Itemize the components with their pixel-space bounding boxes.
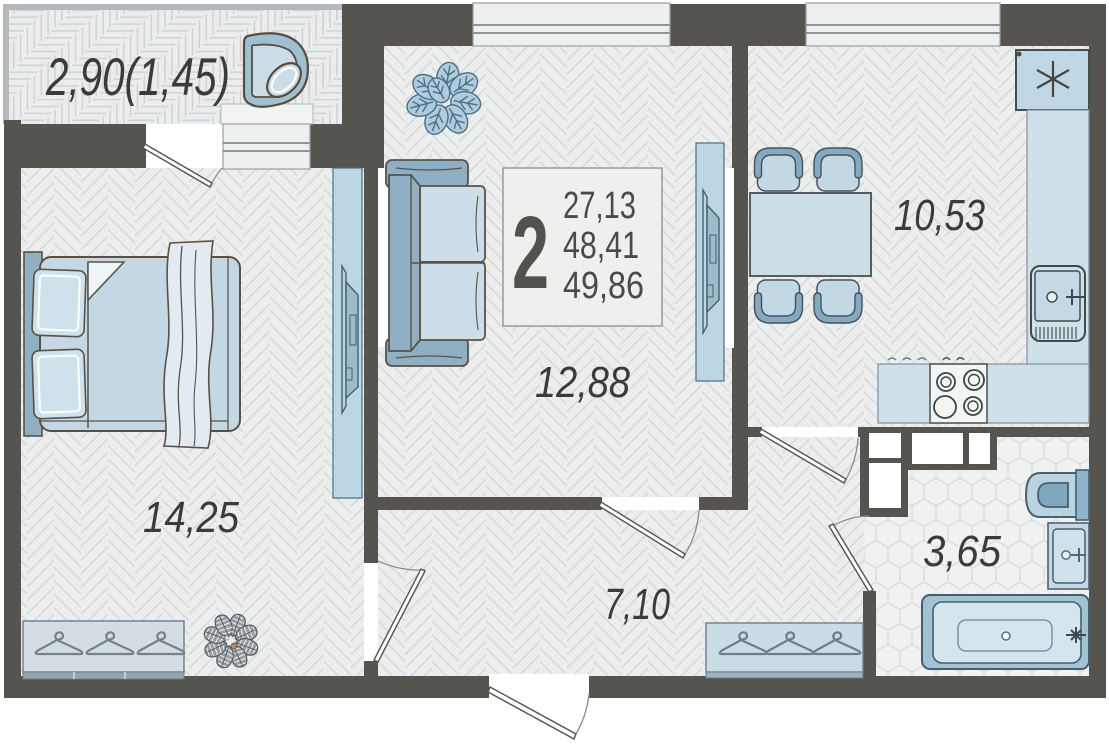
svg-text:3,65: 3,65 xyxy=(923,527,1001,576)
svg-text:49,86: 49,86 xyxy=(563,265,644,307)
svg-text:2: 2 xyxy=(512,195,549,310)
svg-text:7,10: 7,10 xyxy=(604,580,670,629)
svg-text:14,25: 14,25 xyxy=(143,493,239,542)
svg-text:27,13: 27,13 xyxy=(563,185,636,227)
svg-text:12,88: 12,88 xyxy=(535,358,630,407)
svg-text:48,41: 48,41 xyxy=(563,225,639,267)
svg-text:2,90(1,45): 2,90(1,45) xyxy=(45,48,230,107)
svg-text:10,53: 10,53 xyxy=(894,191,985,240)
